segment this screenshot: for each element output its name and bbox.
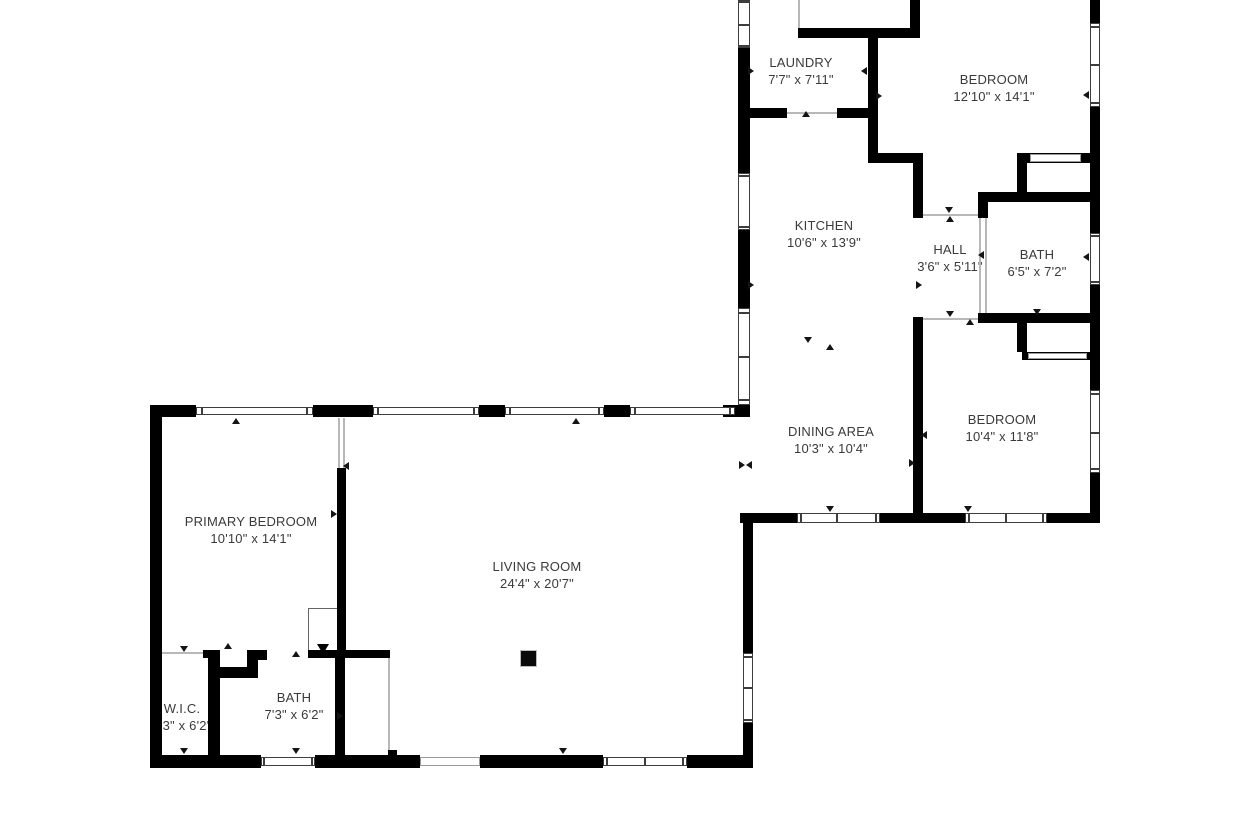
door-marker (224, 643, 232, 649)
sliding-door (1030, 154, 1081, 162)
door-marker (1083, 91, 1089, 99)
wall (738, 230, 750, 308)
room-label-bath-2: BATH7'3" x 6'2" (264, 689, 323, 723)
door-marker (748, 67, 754, 75)
wall (388, 750, 397, 758)
column-post (520, 650, 537, 667)
window-mullion (1091, 235, 1099, 237)
window-mullion (634, 408, 636, 414)
room-label-hall: HALL3'6" x 5'11" (917, 241, 983, 275)
opening-line (985, 218, 987, 313)
window-mullion (739, 312, 749, 314)
window-mullion (836, 514, 838, 522)
door-marker (739, 461, 745, 469)
wall (208, 650, 220, 758)
door-marker (966, 319, 974, 325)
sliding-door (420, 757, 480, 766)
room-name: BATH (264, 689, 323, 706)
wall (985, 192, 1100, 202)
door-marker (802, 111, 810, 117)
door-marker (946, 216, 954, 222)
door-marker (876, 92, 882, 100)
room-dimensions: 10'4" x 11'8" (966, 428, 1039, 445)
window-mullion (1091, 393, 1099, 395)
door-marker (1033, 309, 1041, 315)
door-marker (945, 207, 953, 213)
wall (868, 153, 923, 163)
door-marker (916, 281, 922, 289)
window-mullion (1091, 432, 1099, 434)
opening-line (979, 218, 981, 313)
door-marker (292, 748, 300, 754)
room-dimensions: 12'10" x 14'1" (953, 88, 1034, 105)
wall (604, 405, 630, 417)
door-marker (826, 344, 834, 350)
room-label-kitchen: KITCHEN10'6" x 13'9" (787, 217, 861, 251)
window-mullion (744, 656, 752, 658)
wall (744, 108, 787, 118)
opening-line (162, 652, 208, 654)
door-marker (978, 251, 984, 259)
window-mullion (509, 408, 511, 414)
door-marker (964, 506, 972, 512)
door-marker (572, 418, 580, 424)
window-mullion (377, 408, 379, 414)
sliding-door (1028, 353, 1087, 359)
window-mullion (1091, 102, 1099, 104)
door-marker (909, 459, 915, 467)
door-marker (921, 431, 927, 439)
window-mullion (968, 514, 970, 522)
wall (1090, 107, 1100, 233)
window-mullion (311, 758, 313, 765)
room-dimensions: 3'6" x 5'11" (917, 258, 983, 275)
door-marker (826, 506, 834, 512)
wall (479, 405, 505, 417)
wall (1047, 513, 1100, 523)
window (738, 173, 750, 230)
door-marker (804, 337, 812, 343)
room-name: PRIMARY BEDROOM (185, 513, 318, 530)
window-mullion (739, 1, 749, 3)
window-mullion (473, 408, 475, 414)
wall (247, 650, 267, 660)
window-mullion (263, 758, 265, 765)
wall (337, 468, 346, 658)
opening-line (798, 0, 800, 28)
window-mullion (739, 226, 749, 228)
door-marker (746, 461, 752, 469)
wall (868, 37, 878, 163)
wall (1090, 0, 1100, 23)
wall (1090, 285, 1100, 390)
opening-line (343, 418, 345, 468)
room-dimensions: 24'4" x 20'7" (493, 575, 582, 592)
wall (315, 755, 420, 768)
room-label-bedroom-1: BEDROOM12'10" x 14'1" (953, 71, 1034, 105)
window-mullion (1091, 26, 1099, 28)
window-mullion (744, 687, 752, 689)
opening-line (388, 658, 390, 750)
door-marker (292, 651, 300, 657)
door-marker (337, 712, 343, 720)
wall (480, 755, 603, 768)
window-mullion (739, 24, 749, 26)
window (630, 407, 735, 415)
door-marker (180, 646, 188, 652)
wall (913, 317, 923, 513)
room-dimensions: 7'7" x 7'11" (768, 71, 834, 88)
wall (910, 0, 920, 38)
room-label-bath-1: BATH6'5" x 7'2" (1007, 246, 1066, 280)
window-mullion (682, 758, 684, 765)
stair-down-arrow (317, 644, 329, 654)
window-mullion (1091, 468, 1099, 470)
window-mullion (606, 758, 608, 765)
window-mullion (306, 408, 308, 414)
room-label-primary-bedroom: PRIMARY BEDROOM10'10" x 14'1" (185, 513, 318, 547)
room-name: BEDROOM (966, 411, 1039, 428)
room-name: LIVING ROOM (493, 558, 582, 575)
window-mullion (739, 356, 749, 358)
door-marker (180, 748, 188, 754)
floor-plan-canvas: LAUNDRY7'7" x 7'11"BEDROOM12'10" x 14'1"… (0, 0, 1250, 831)
wall (743, 723, 753, 768)
window-mullion (875, 514, 877, 522)
door-marker (559, 748, 567, 754)
room-dimensions: 6'5" x 7'2" (1007, 263, 1066, 280)
wall (913, 163, 923, 218)
room-name: BATH (1007, 246, 1066, 263)
room-name: DINING AREA (788, 423, 874, 440)
room-dimensions: 7'3" x 6'2" (264, 706, 323, 723)
wall (1017, 323, 1027, 352)
window-mullion (739, 45, 749, 47)
window-mullion (598, 408, 600, 414)
window (373, 407, 479, 415)
window-mullion (1091, 281, 1099, 283)
door-marker (946, 311, 954, 317)
door-marker (232, 418, 240, 424)
wall (150, 405, 162, 768)
window-mullion (644, 758, 646, 765)
window-mullion (1042, 514, 1044, 522)
room-label-dining-area: DINING AREA10'3" x 10'4" (788, 423, 874, 457)
room-name: LAUNDRY (768, 54, 834, 71)
window (505, 407, 604, 415)
door-marker (1083, 253, 1089, 261)
room-label-living-room: LIVING ROOM24'4" x 20'7" (493, 558, 582, 592)
window (196, 407, 313, 415)
door-marker (748, 281, 754, 289)
window-mullion (800, 514, 802, 522)
room-name: HALL (917, 241, 983, 258)
wall (880, 513, 965, 523)
wall (335, 658, 345, 758)
wall (150, 405, 196, 417)
room-dimensions: 10'10" x 14'1" (185, 530, 318, 547)
window-mullion (201, 408, 203, 414)
room-label-bedroom-2: BEDROOM10'4" x 11'8" (966, 411, 1039, 445)
window (1090, 233, 1100, 285)
window (797, 513, 880, 523)
room-dimensions: 10'3" x 10'4" (788, 440, 874, 457)
room-name: BEDROOM (953, 71, 1034, 88)
window-mullion (729, 408, 731, 414)
wall (743, 513, 753, 653)
window-mullion (1005, 514, 1007, 522)
wall (313, 405, 373, 417)
room-label-laundry: LAUNDRY7'7" x 7'11" (768, 54, 834, 88)
window-mullion (744, 719, 752, 721)
window-mullion (739, 399, 749, 401)
wall (978, 192, 988, 218)
room-dimensions: 10'6" x 13'9" (787, 234, 861, 251)
door-marker (861, 67, 867, 75)
wall (150, 755, 261, 768)
door-marker (331, 510, 337, 518)
opening-line (787, 112, 837, 114)
door-marker (343, 462, 349, 470)
window-mullion (739, 175, 749, 177)
wall (798, 28, 920, 38)
wall (220, 667, 258, 678)
wall (837, 108, 878, 118)
room-name: KITCHEN (787, 217, 861, 234)
opening-line (338, 418, 340, 468)
window-mullion (1091, 64, 1099, 66)
window (261, 757, 315, 766)
